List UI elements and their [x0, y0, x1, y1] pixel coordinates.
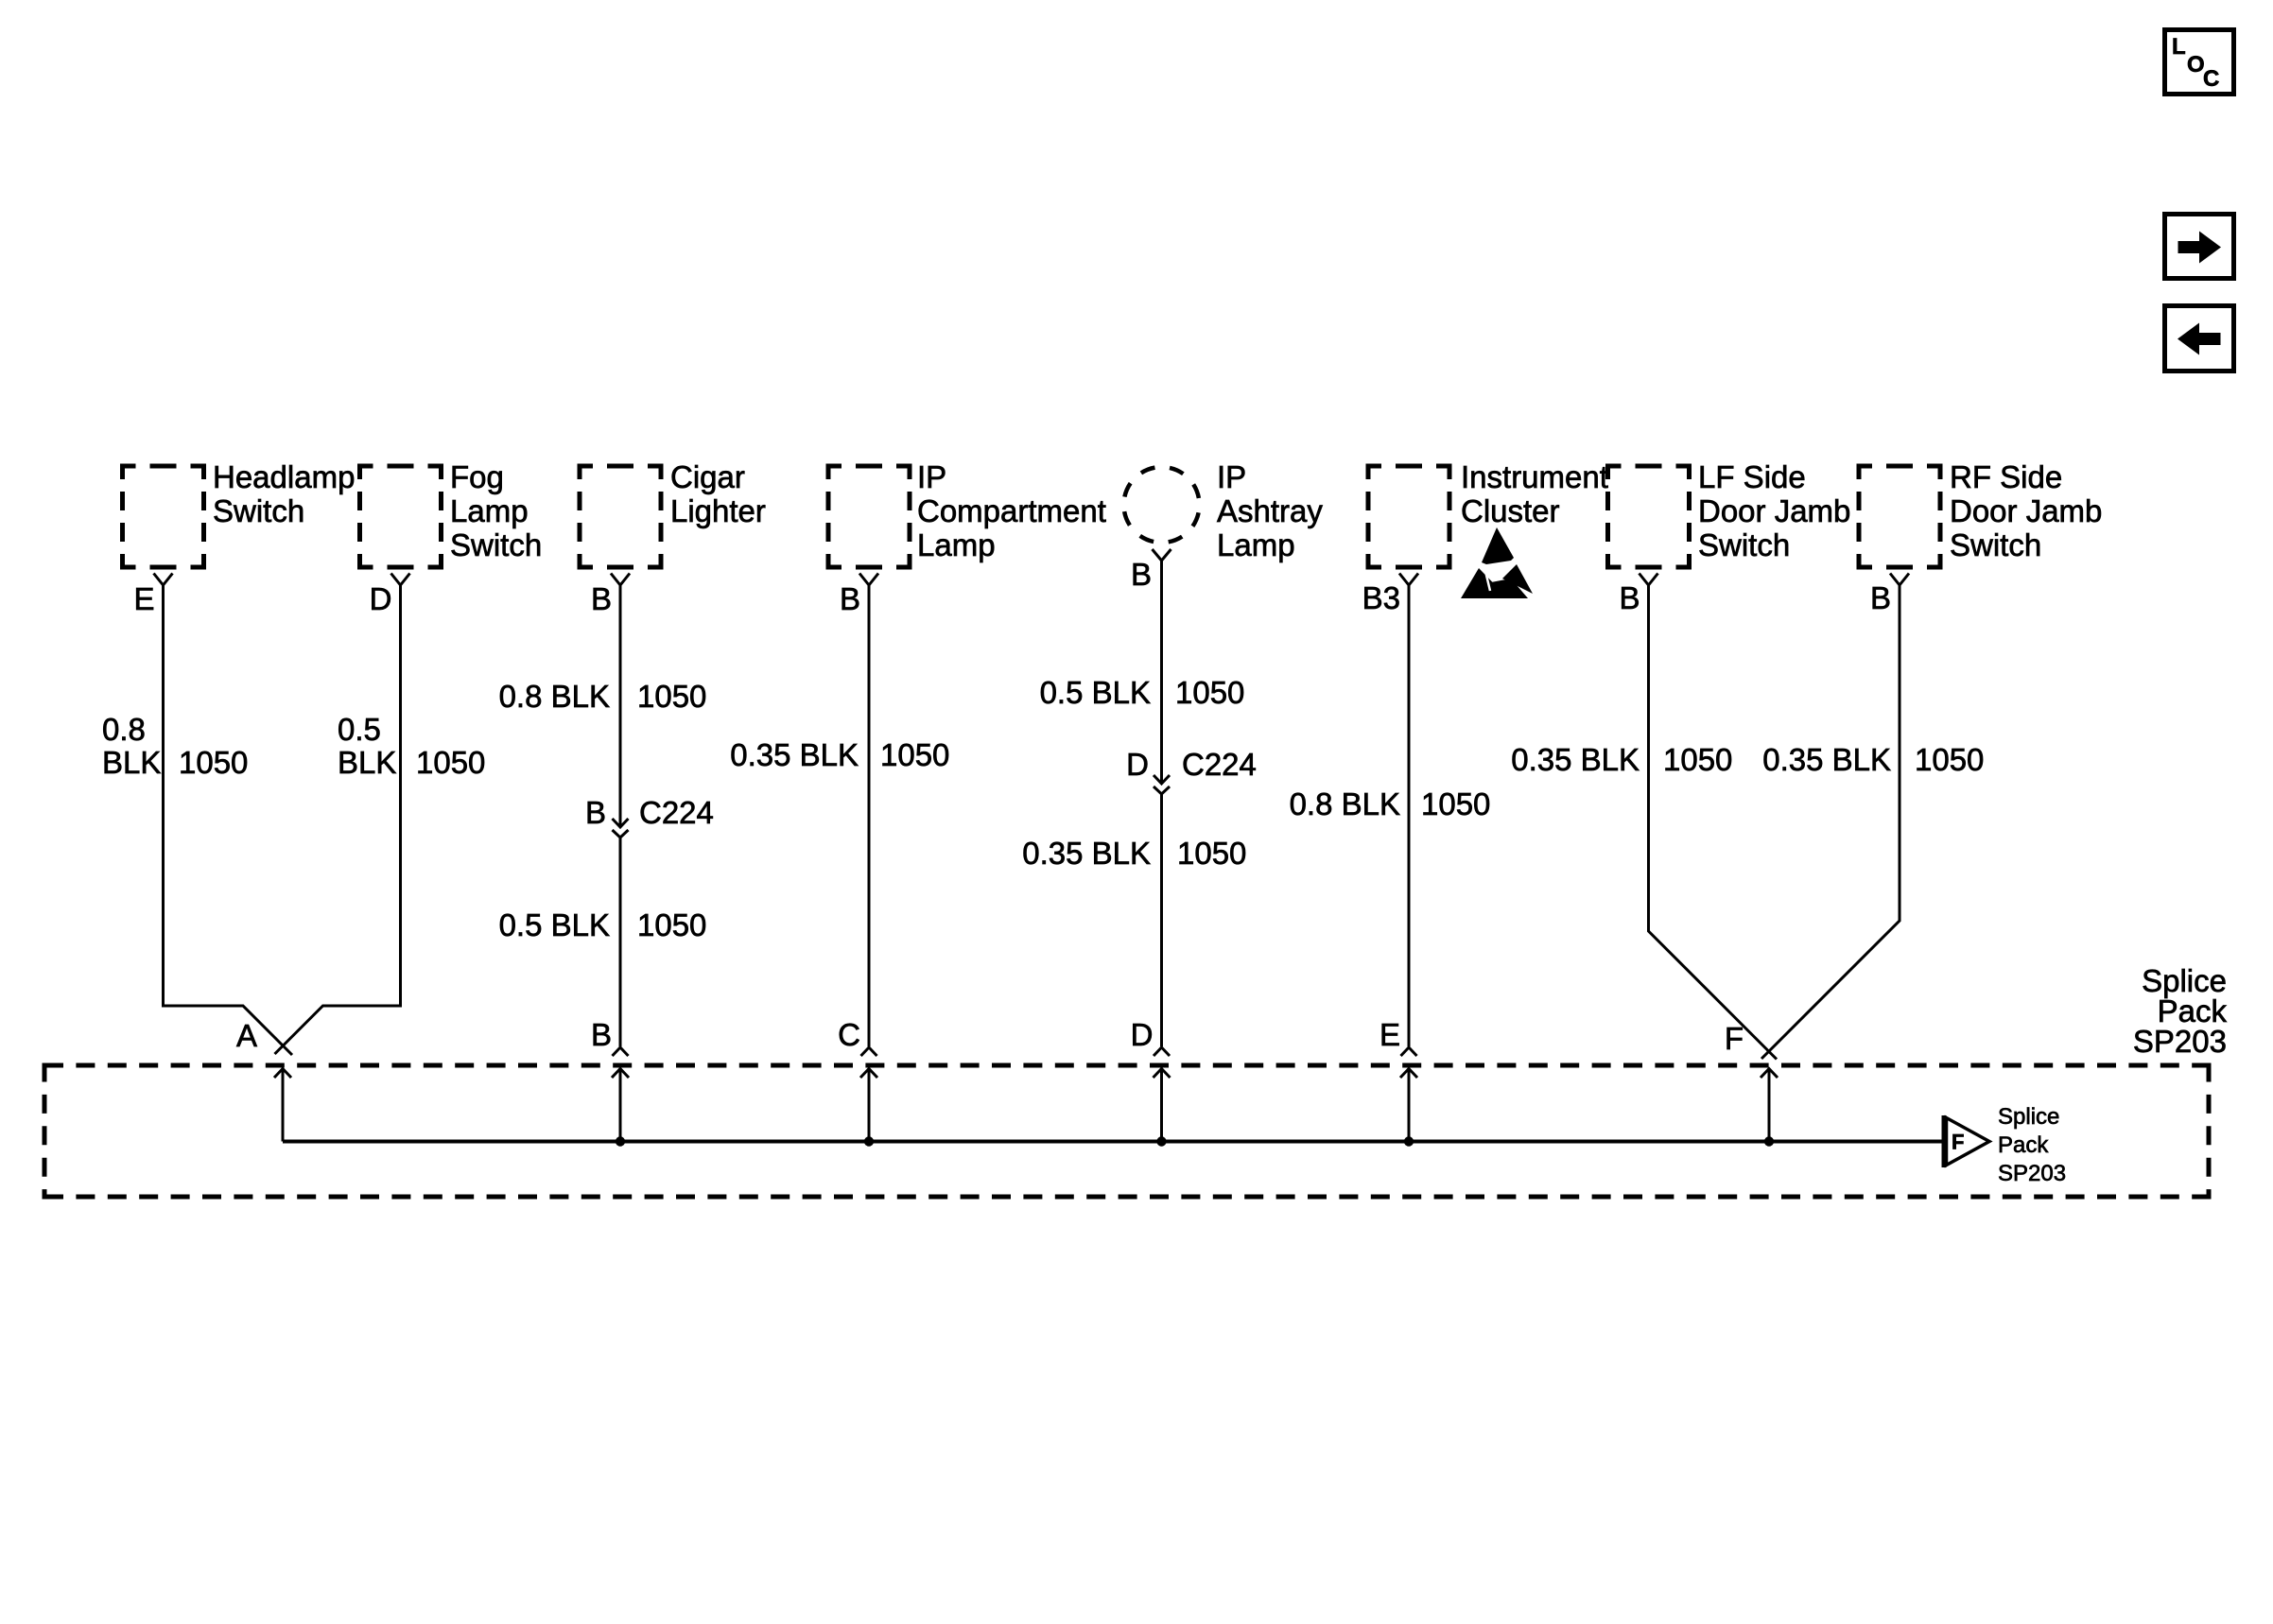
svg-text:Lamp: Lamp [917, 527, 996, 562]
svg-text:Door Jamb: Door Jamb [1950, 493, 2102, 528]
svg-text:Cigar: Cigar [670, 459, 745, 494]
svg-text:0.35 BLK: 0.35 BLK [730, 737, 859, 772]
svg-text:C224: C224 [639, 795, 714, 830]
svg-text:Switch: Switch [1698, 527, 1790, 562]
svg-text:B: B [591, 581, 612, 616]
svg-text:B: B [1619, 580, 1640, 615]
svg-text:0.5: 0.5 [338, 712, 381, 747]
svg-text:0.8 BLK: 0.8 BLK [499, 679, 610, 714]
svg-text:0.35 BLK: 0.35 BLK [1022, 836, 1151, 871]
svg-text:Headlamp: Headlamp [213, 459, 355, 494]
svg-text:E: E [133, 581, 154, 616]
svg-text:B: B [1131, 557, 1152, 592]
svg-text:B: B [1870, 580, 1891, 615]
svg-text:F: F [1725, 1021, 1744, 1056]
svg-text:Switch: Switch [213, 493, 304, 528]
svg-text:C: C [838, 1017, 860, 1052]
svg-text:0.5 BLK: 0.5 BLK [499, 907, 610, 942]
svg-text:BLK: BLK [338, 745, 396, 780]
svg-text:D: D [1131, 1017, 1154, 1052]
svg-text:D: D [1126, 747, 1149, 782]
svg-text:Door Jamb: Door Jamb [1698, 493, 1850, 528]
svg-text:Lighter: Lighter [670, 493, 766, 528]
svg-text:F: F [1952, 1131, 1964, 1154]
svg-text:C224: C224 [1182, 747, 1257, 782]
svg-text:0.8 BLK: 0.8 BLK [1290, 786, 1400, 821]
svg-text:1050: 1050 [637, 907, 706, 942]
svg-text:Compartment: Compartment [917, 493, 1106, 528]
svg-text:B: B [585, 795, 606, 830]
svg-text:Cluster: Cluster [1461, 493, 1560, 528]
svg-text:B3: B3 [1362, 580, 1400, 615]
svg-text:1050: 1050 [1915, 742, 1984, 777]
svg-text:B: B [591, 1017, 612, 1052]
svg-text:Ashtray: Ashtray [1217, 493, 1323, 528]
svg-text:C: C [2203, 66, 2219, 92]
svg-text:Switch: Switch [450, 527, 542, 562]
svg-text:SP203: SP203 [1998, 1161, 2066, 1186]
svg-text:0.35 BLK: 0.35 BLK [1762, 742, 1891, 777]
svg-text:1050: 1050 [1421, 786, 1490, 821]
svg-text:D: D [370, 581, 392, 616]
svg-text:1050: 1050 [1175, 675, 1244, 710]
svg-text:1050: 1050 [880, 737, 949, 772]
svg-text:B: B [840, 581, 860, 616]
svg-text:1050: 1050 [1663, 742, 1732, 777]
svg-text:IP: IP [1217, 459, 1246, 494]
svg-text:Lamp: Lamp [1217, 527, 1295, 562]
svg-text:0.35 BLK: 0.35 BLK [1511, 742, 1640, 777]
svg-text:O: O [2187, 52, 2205, 78]
svg-text:1050: 1050 [1177, 836, 1246, 871]
svg-text:SP203: SP203 [2133, 1024, 2227, 1059]
svg-text:Instrument: Instrument [1461, 459, 1608, 494]
svg-text:Pack: Pack [1998, 1132, 2049, 1158]
svg-text:E: E [1379, 1017, 1400, 1052]
svg-text:Splice: Splice [1998, 1104, 2059, 1130]
svg-text:1050: 1050 [416, 745, 485, 780]
svg-text:Fog: Fog [450, 459, 504, 494]
svg-text:BLK: BLK [102, 745, 161, 780]
svg-text:Switch: Switch [1950, 527, 2041, 562]
svg-text:1050: 1050 [637, 679, 706, 714]
svg-text:LF Side: LF Side [1698, 459, 1806, 494]
svg-text:0.8: 0.8 [102, 712, 146, 747]
svg-text:0.5 BLK: 0.5 BLK [1040, 675, 1151, 710]
svg-text:RF Side: RF Side [1950, 459, 2062, 494]
svg-text:1050: 1050 [179, 745, 248, 780]
svg-text:A: A [236, 1018, 257, 1053]
svg-text:Lamp: Lamp [450, 493, 529, 528]
svg-text:L: L [2172, 34, 2186, 60]
svg-text:IP: IP [917, 459, 946, 494]
